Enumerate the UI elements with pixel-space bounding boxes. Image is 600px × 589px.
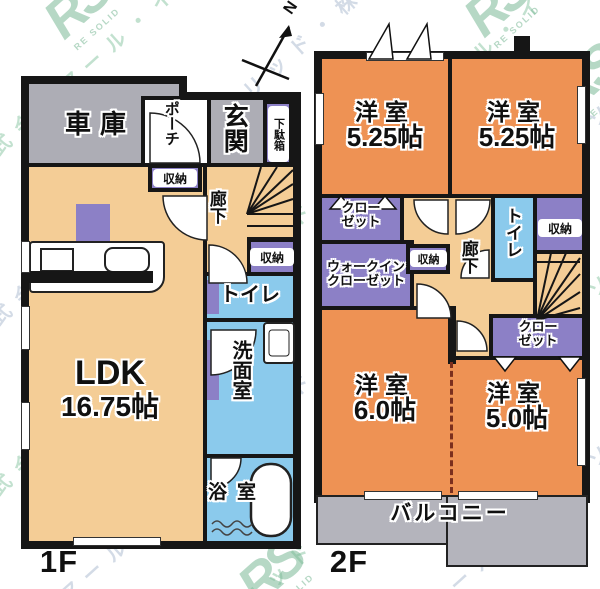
floor-plan-canvas: 株式会社アール・イー・ソリッド・株式会社アール・イー・ソリッド・ 株式会社アール… (0, 0, 600, 589)
storage-2f-right (533, 194, 586, 254)
room-porch (141, 96, 211, 167)
closet-2f-top (318, 194, 404, 244)
balcony-west (316, 495, 450, 545)
window (366, 52, 444, 61)
kitchen-sink (40, 248, 74, 272)
room-west-5-25 (318, 55, 452, 198)
kitchen-counter-wall (29, 271, 153, 283)
window (21, 402, 30, 450)
toilet-cabinet (207, 280, 219, 314)
north-arrow-icon: N (242, 0, 301, 86)
window (458, 491, 538, 500)
room-6-0 (318, 306, 452, 499)
room-toilet-2f (491, 194, 537, 282)
window (577, 86, 586, 144)
room-ldk (25, 163, 211, 545)
room-5-0 (448, 356, 586, 499)
closet-2f-bottom (489, 314, 586, 360)
walk-in-closet (318, 240, 414, 310)
balcony-east (446, 495, 588, 567)
floor1-label: 1F (24, 546, 94, 579)
storage-1f-top (148, 164, 202, 192)
floor2-label: 2F (314, 546, 384, 579)
window (21, 241, 30, 273)
window (73, 537, 161, 546)
north-label: N (281, 0, 302, 18)
room-east-5-25 (448, 55, 586, 198)
roof-vent (514, 36, 530, 58)
storage-2f-center (406, 244, 450, 274)
window (315, 93, 324, 145)
ldk-counter-block (76, 204, 110, 246)
storage-1f-mid (247, 238, 297, 276)
window (21, 306, 30, 350)
washroom-cabinet (207, 340, 219, 400)
watermark-logo: RSRE SOLID (38, 0, 124, 54)
kitchen-stove (104, 247, 150, 273)
room-bathroom (203, 454, 297, 545)
room-divider-dashed (450, 362, 453, 493)
window (577, 378, 586, 466)
wall-stub (448, 306, 456, 364)
window (364, 491, 442, 500)
shoe-cabinet (263, 100, 293, 166)
watermark-logo: RSRE SOLID (458, 0, 544, 52)
